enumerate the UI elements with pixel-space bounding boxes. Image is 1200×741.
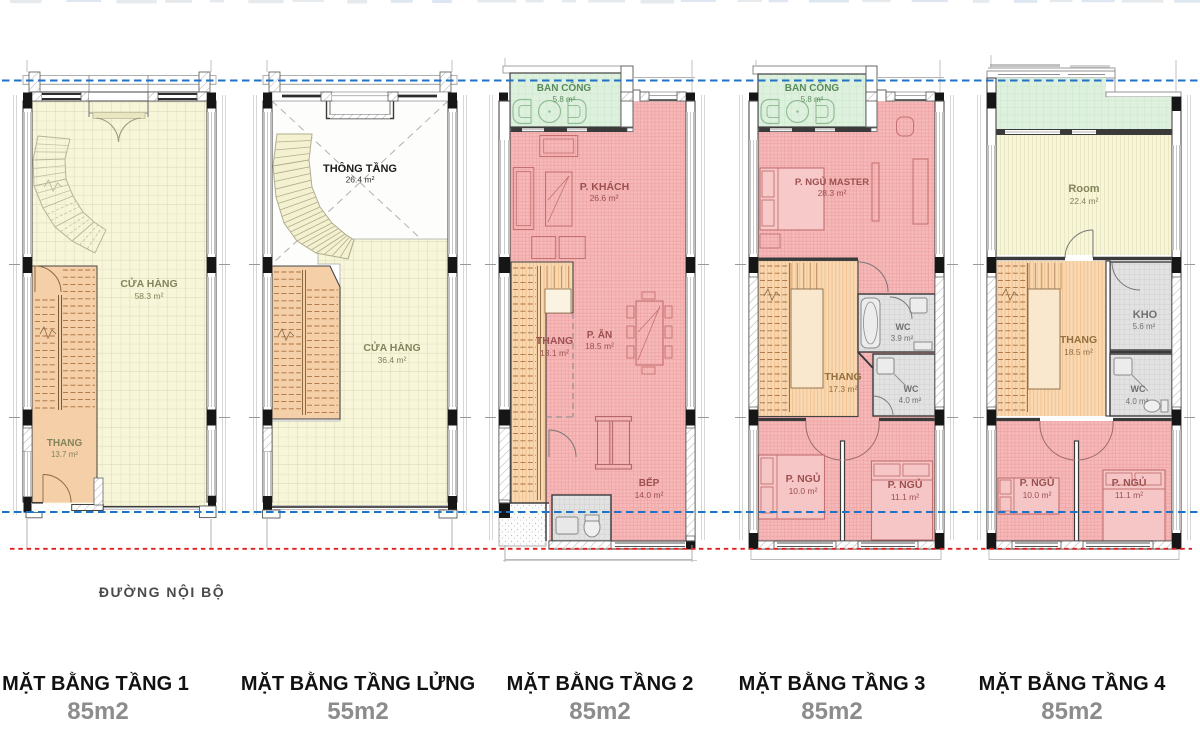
svg-text:P. NGỦ: P. NGỦ [786,472,821,485]
svg-text:26.4 m²: 26.4 m² [346,175,375,185]
svg-text:85m2: 85m2 [801,698,862,725]
svg-text:18.5 m²: 18.5 m² [1064,347,1093,357]
svg-text:3.9 m²: 3.9 m² [891,334,914,343]
svg-text:BAN CÔNG: BAN CÔNG [537,81,592,94]
svg-text:CỬA HÀNG: CỬA HÀNG [363,341,420,354]
svg-text:WC: WC [904,384,919,394]
svg-text:55m2: 55m2 [327,698,388,725]
svg-text:P. NGỦ: P. NGỦ [1020,476,1055,489]
svg-text:36.4 m²: 36.4 m² [378,355,407,365]
svg-text:MẶT BẰNG TẦNG 2: MẶT BẰNG TẦNG 2 [507,671,694,695]
svg-text:85m2: 85m2 [1041,698,1102,725]
svg-text:11.1 m²: 11.1 m² [891,492,919,502]
svg-text:CỬA HÀNG: CỬA HÀNG [120,277,177,290]
svg-text:P. ĂN: P. ĂN [587,328,612,341]
svg-text:58.3 m²: 58.3 m² [135,291,164,301]
svg-text:14.0 m²: 14.0 m² [635,490,664,500]
svg-text:MẶT BẰNG TẦNG 4: MẶT BẰNG TẦNG 4 [979,671,1167,695]
svg-text:85m2: 85m2 [67,698,128,725]
svg-text:P. NGỦ MASTER: P. NGỦ MASTER [795,176,869,188]
svg-text:5.6 m²: 5.6 m² [1133,322,1156,331]
svg-text:13.7 m²: 13.7 m² [51,450,78,459]
svg-text:13.1 m²: 13.1 m² [540,348,569,358]
svg-text:BAN CÔNG: BAN CÔNG [785,81,840,94]
svg-text:17.3 m²: 17.3 m² [829,384,858,394]
svg-text:MẶT BẰNG TẦNG LỬNG: MẶT BẰNG TẦNG LỬNG [241,671,475,695]
svg-text:THANG: THANG [47,438,83,449]
svg-text:WC: WC [1131,384,1146,394]
svg-text:18.5 m²: 18.5 m² [585,341,614,351]
svg-text:WC: WC [896,322,911,332]
svg-text:THANG: THANG [1060,334,1097,346]
svg-text:P. NGỦ: P. NGỦ [888,478,923,491]
svg-text:4.0 m²: 4.0 m² [899,396,922,405]
svg-text:22.4 m²: 22.4 m² [1070,196,1099,206]
svg-text:MẶT BẰNG TẦNG 3: MẶT BẰNG TẦNG 3 [739,671,926,695]
svg-text:THÔNG TẦNG: THÔNG TẦNG [323,162,397,175]
svg-text:11.1 m²: 11.1 m² [1115,490,1143,500]
svg-text:85m2: 85m2 [569,698,630,725]
svg-text:ĐƯỜNG NỘI BỘ: ĐƯỜNG NỘI BỘ [99,583,225,600]
svg-text:5.8 m²: 5.8 m² [801,95,824,104]
svg-text:P. KHÁCH: P. KHÁCH [580,180,629,193]
svg-text:4.0 m²: 4.0 m² [1126,397,1149,406]
svg-text:MẶT BẰNG TẦNG 1: MẶT BẰNG TẦNG 1 [2,671,189,695]
svg-text:THANG: THANG [536,335,573,347]
svg-text:28.3 m²: 28.3 m² [818,188,847,198]
svg-text:Room: Room [1068,183,1099,195]
svg-text:26.6 m²: 26.6 m² [590,193,619,203]
svg-text:THANG: THANG [824,371,861,383]
svg-text:KHO: KHO [1133,309,1158,321]
svg-text:5.8 m²: 5.8 m² [553,95,576,104]
svg-text:10.0 m²: 10.0 m² [789,486,818,496]
svg-text:P. NGỦ: P. NGỦ [1112,476,1147,489]
svg-text:10.0 m²: 10.0 m² [1023,490,1052,500]
svg-text:BẾP: BẾP [639,476,660,489]
